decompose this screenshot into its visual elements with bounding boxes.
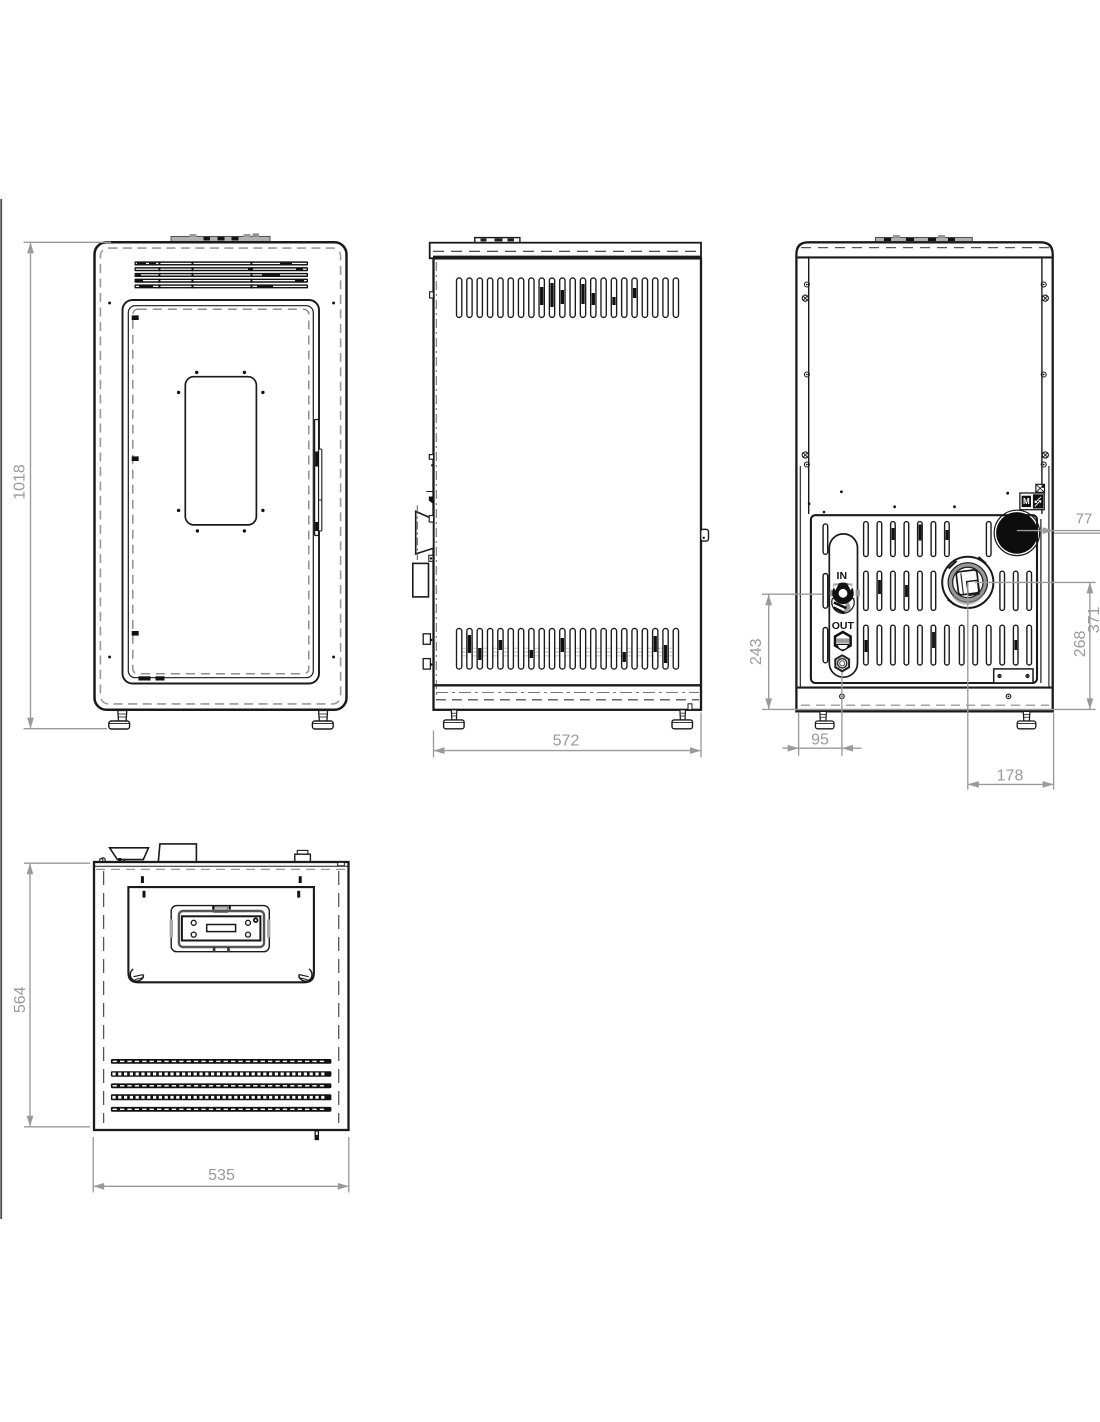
svg-text:OUT: OUT bbox=[832, 620, 855, 632]
svg-text:564: 564 bbox=[12, 986, 29, 1013]
svg-text:371: 371 bbox=[1086, 606, 1100, 633]
svg-text:243: 243 bbox=[748, 638, 765, 665]
svg-text:95: 95 bbox=[811, 732, 829, 749]
svg-text:1018: 1018 bbox=[12, 464, 29, 500]
svg-text:268: 268 bbox=[1072, 630, 1089, 657]
svg-text:178: 178 bbox=[997, 768, 1024, 785]
svg-text:572: 572 bbox=[553, 733, 580, 750]
svg-text:IN: IN bbox=[837, 570, 848, 582]
svg-text:535: 535 bbox=[208, 1167, 235, 1184]
svg-text:77: 77 bbox=[1076, 510, 1093, 527]
svg-text:M: M bbox=[1023, 497, 1030, 506]
